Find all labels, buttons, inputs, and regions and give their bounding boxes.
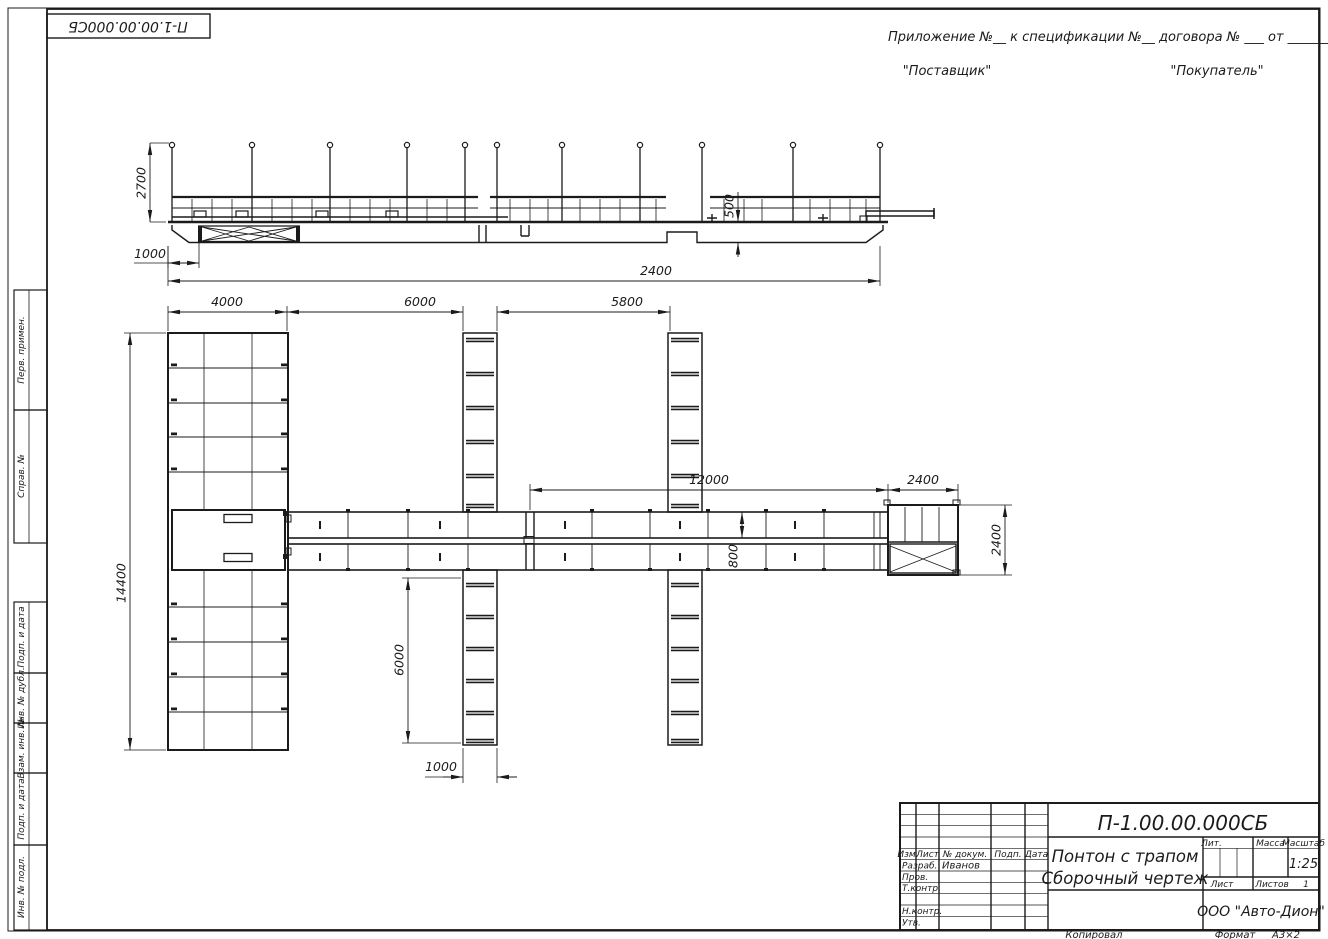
title-block: П-1.00.00.000СБ Понтон с трапом Сборочны…	[897, 803, 1325, 930]
dim-1000-elev: 1000	[134, 246, 166, 261]
dim-14400: 14400	[114, 563, 129, 603]
plan-view	[168, 333, 960, 750]
lit-label: Лит.	[1200, 839, 1222, 849]
listov-value: 1	[1303, 880, 1309, 890]
corner-doc-number: П-1.00.00.000СБ	[68, 18, 188, 34]
dim-2400-top: 2400	[907, 472, 939, 487]
finger-pier-upper-1	[463, 333, 497, 512]
list-label: Лист	[1210, 880, 1235, 890]
dim-2400-platform: 2400	[989, 524, 1004, 556]
dim-1000-finger: 1000	[425, 759, 457, 774]
drawing-canvas: П-1.00.00.000СБ Перв. примен. Справ. № П…	[0, 0, 1328, 939]
stamp-sprav-n: Справ. №	[17, 454, 27, 498]
stamp-vzam-inv: Взам. инв. №	[17, 717, 27, 778]
buyer-label: "Покупатель"	[1170, 64, 1263, 79]
titleblock-doc-number: П-1.00.00.000СБ	[1098, 811, 1269, 835]
company-name: ООО "Авто-Дион"	[1197, 904, 1325, 920]
dim-12000: 12000	[689, 472, 729, 487]
sheet-frame: П-1.00.00.000СБ	[8, 8, 1320, 931]
ramp-hatch	[172, 510, 288, 570]
supplier-label: "Поставщик"	[903, 64, 992, 79]
row-tkontr: Т.контр.	[902, 884, 941, 894]
razrab-name: Иванов	[942, 861, 980, 872]
scissor-lift	[198, 226, 300, 242]
elevation-view	[168, 142, 934, 242]
col-podp: Подп.	[994, 850, 1021, 860]
row-prov: Пров.	[902, 873, 928, 883]
dim-6000: 6000	[404, 294, 436, 309]
walkway	[286, 509, 888, 571]
note-line: Приложение №__ к спецификации №__ догово…	[888, 30, 1328, 45]
dim-2700: 2700	[134, 167, 149, 199]
main-pontoon	[168, 333, 288, 750]
stamp-inv-podl: Инв. № подл.	[17, 856, 27, 918]
elevation-dimensions: 2700 1000 500 2400	[134, 143, 881, 286]
row-nkontr: Н.контр.	[902, 907, 942, 917]
drawing-title-line2: Сборочный чертеж	[1042, 869, 1209, 888]
gangway-side	[860, 208, 934, 222]
masshtab-label: Масштаб	[1282, 839, 1325, 849]
copied-label: Копировал	[1065, 930, 1123, 939]
col-list: Лист	[915, 850, 940, 860]
stamp-podp-data-1: Подп. и дата	[17, 606, 27, 667]
stamp-podp-data-2: Подп. и дата	[17, 778, 27, 839]
post-shoes	[194, 211, 398, 217]
contract-note: Приложение №__ к спецификации №__ догово…	[888, 30, 1328, 79]
dim-800: 800	[726, 544, 741, 568]
format-value: А3×2	[1271, 930, 1300, 939]
format-label: Формат	[1215, 930, 1257, 939]
row-razrab: Разраб.	[902, 862, 937, 872]
finger-pier-lower-1	[463, 570, 497, 745]
stamp-perv-primen: Перв. примен.	[17, 316, 27, 384]
row-utv: Утв.	[902, 919, 921, 929]
listov-label: Листов	[1254, 880, 1289, 890]
dim-5800: 5800	[611, 294, 643, 309]
col-doc: № докум.	[942, 850, 987, 860]
dim-2400-total: 2400	[640, 263, 672, 278]
pontoon-hull	[172, 225, 883, 243]
ramp-handle-bottom	[224, 554, 252, 562]
ramp-handle-top	[224, 515, 252, 523]
post-ball-tops	[169, 142, 882, 147]
finger-pier-lower-2	[668, 570, 702, 745]
dim-6000-finger: 6000	[392, 644, 407, 676]
col-data: Дата	[1024, 850, 1048, 860]
gangway-platform	[884, 500, 960, 575]
dim-500: 500	[722, 194, 737, 218]
scale-value: 1:25	[1289, 857, 1318, 872]
massa-label: Масса	[1256, 839, 1285, 849]
drawing-title-line1: Понтон с трапом	[1052, 847, 1199, 866]
gangway-plan-hatch	[890, 544, 956, 573]
railing-posts	[172, 148, 880, 222]
side-stamps: Перв. примен. Справ. № Подп. и дата Инв.…	[14, 290, 47, 930]
dim-4000: 4000	[211, 294, 243, 309]
drawing-sheet: П-1.00.00.000СБ Перв. примен. Справ. № П…	[0, 0, 1328, 939]
